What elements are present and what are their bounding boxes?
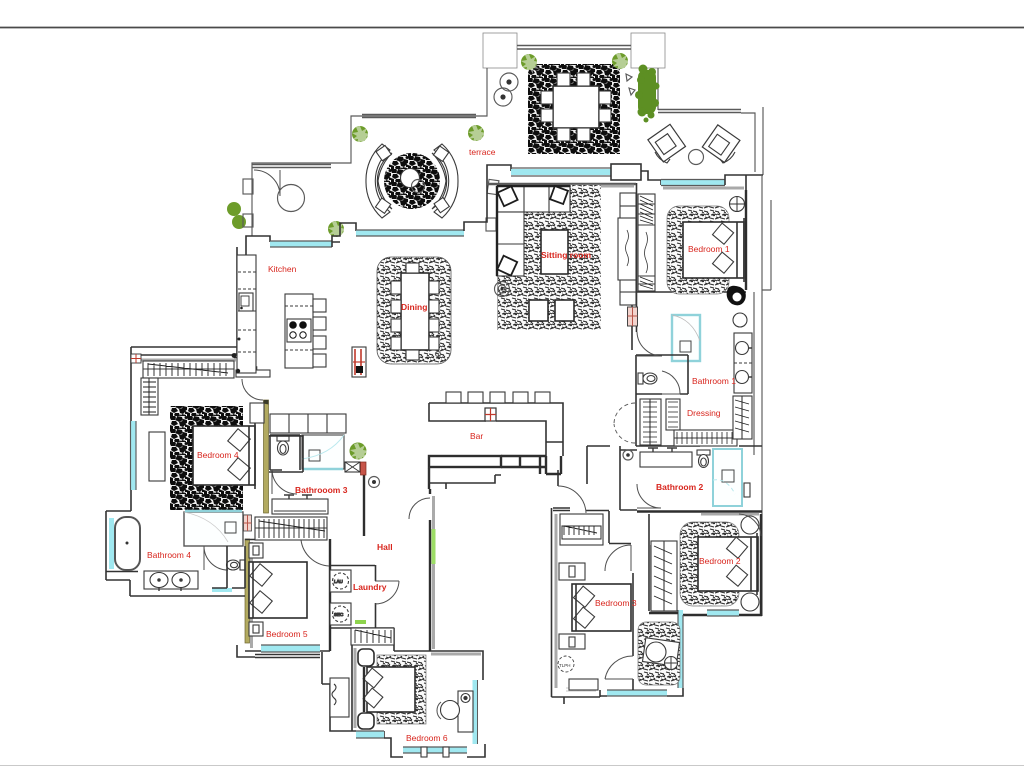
- svg-text:Hall: Hall: [377, 542, 393, 552]
- svg-text:Kitchen: Kitchen: [268, 264, 297, 274]
- svg-text:Bathroom 1: Bathroom 1: [692, 376, 736, 386]
- svg-text:Dressing: Dressing: [687, 408, 721, 418]
- svg-text:Bedroom 4: Bedroom 4: [197, 450, 239, 460]
- svg-text:Sitting room: Sitting room: [541, 250, 591, 260]
- svg-text:Bathroom 2: Bathroom 2: [656, 482, 704, 492]
- svg-text:SEC: SEC: [334, 612, 344, 617]
- svg-text:Bedroom 3: Bedroom 3: [595, 598, 637, 608]
- svg-text:Bathroom 4: Bathroom 4: [147, 550, 191, 560]
- svg-text:Bar: Bar: [470, 431, 483, 441]
- svg-text:TLPH: TLPH: [559, 663, 571, 668]
- svg-text:Dining: Dining: [401, 302, 427, 312]
- svg-text:Bedroom 1: Bedroom 1: [688, 244, 730, 254]
- svg-text:Bedroom 5: Bedroom 5: [266, 629, 308, 639]
- svg-text:Bedroom 2: Bedroom 2: [699, 556, 741, 566]
- svg-text:Bathrooom 3: Bathrooom 3: [295, 485, 348, 495]
- svg-text:Bedroom 6: Bedroom 6: [406, 733, 448, 743]
- svg-text:Laundry: Laundry: [353, 582, 387, 592]
- svg-text:terrace: terrace: [469, 147, 496, 157]
- svg-text:LAU: LAU: [334, 579, 343, 584]
